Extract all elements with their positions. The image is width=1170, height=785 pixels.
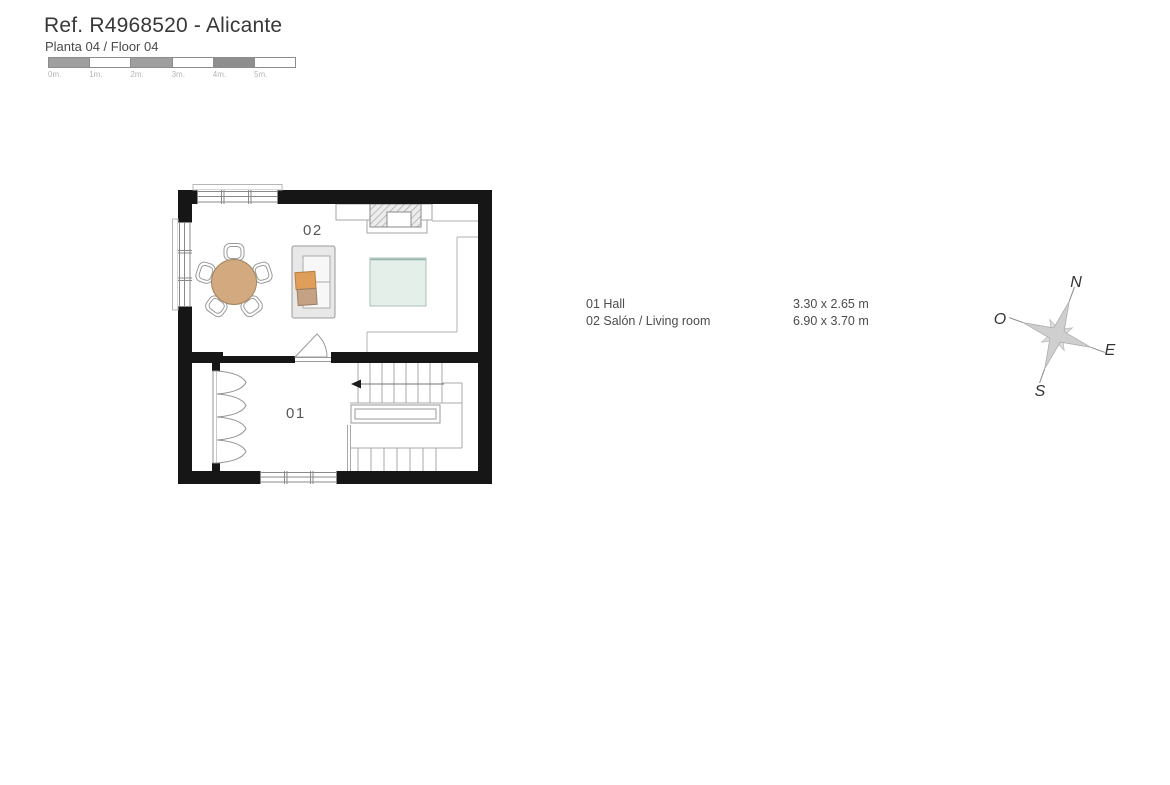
window-bottom	[260, 471, 337, 484]
scale-bar-tick-label: 1m.	[89, 70, 102, 79]
floor-plan-drawing	[170, 178, 505, 498]
scale-bar-segment	[131, 58, 172, 67]
scale-bar-segment	[255, 58, 295, 67]
middle-wall-left	[192, 352, 223, 363]
scale-bar-segment	[214, 58, 255, 67]
compass-rose	[987, 263, 1127, 403]
scale-bar-tick-label: 4m.	[213, 70, 226, 79]
staircase	[348, 363, 463, 471]
table-top	[212, 260, 257, 305]
door-swing-arc	[295, 334, 327, 357]
scale-bar-segment	[90, 58, 131, 67]
compass-south-label: S	[1035, 383, 1046, 401]
middle-wall-right	[331, 352, 478, 363]
legend: 01 Hall 3.30 x 2.65 m 02 Salón / Living …	[586, 296, 926, 330]
rug	[370, 258, 426, 306]
closet	[213, 371, 246, 463]
stair-treads-lower	[358, 448, 436, 471]
walls	[178, 190, 492, 484]
compass-west-label: O	[994, 311, 1006, 329]
room-label-hall: 01	[286, 405, 306, 422]
sofa-cushions	[295, 271, 317, 305]
legend-row-hall: 01 Hall 3.30 x 2.65 m	[586, 296, 926, 313]
page-title: Ref. R4968520 - Alicante	[44, 14, 282, 38]
scale-bar-segment	[49, 58, 90, 67]
sofa	[292, 246, 335, 318]
legend-room-size: 6.90 x 3.70 m	[793, 313, 869, 330]
fireplace	[336, 204, 432, 233]
window-top	[193, 185, 282, 205]
page-subtitle: Planta 04 / Floor 04	[45, 39, 158, 54]
scale-bar-tick-label: 3m.	[172, 70, 185, 79]
scale-bar-tick-label: 2m.	[130, 70, 143, 79]
stair-direction-arrow	[351, 380, 361, 389]
scale-bar-segment	[173, 58, 214, 67]
compass-east-label: E	[1105, 342, 1116, 360]
compass-north-label: N	[1070, 274, 1082, 292]
compass-star-main	[1011, 289, 1103, 381]
interior-door	[295, 334, 331, 362]
legend-room-name: 01 Hall	[586, 297, 625, 311]
floorplan-page: { "header": { "title": "Ref. R4968520 - …	[0, 0, 1170, 785]
legend-room-size: 3.30 x 2.65 m	[793, 296, 869, 313]
window-left	[173, 219, 193, 310]
legend-room-name: 02 Salón / Living room	[586, 314, 710, 328]
stair-treads-upper	[358, 363, 442, 403]
scale-bar-tick-label: 5m.	[254, 70, 267, 79]
legend-row-living: 02 Salón / Living room 6.90 x 3.70 m	[586, 313, 926, 330]
scale-bar	[48, 57, 296, 68]
scale-bar-labels: 0m.1m.2m.3m.4m.5m.	[48, 70, 308, 80]
scale-bar-tick-label: 0m.	[48, 70, 61, 79]
dining-table	[194, 244, 273, 320]
room-label-living: 02	[303, 222, 323, 239]
